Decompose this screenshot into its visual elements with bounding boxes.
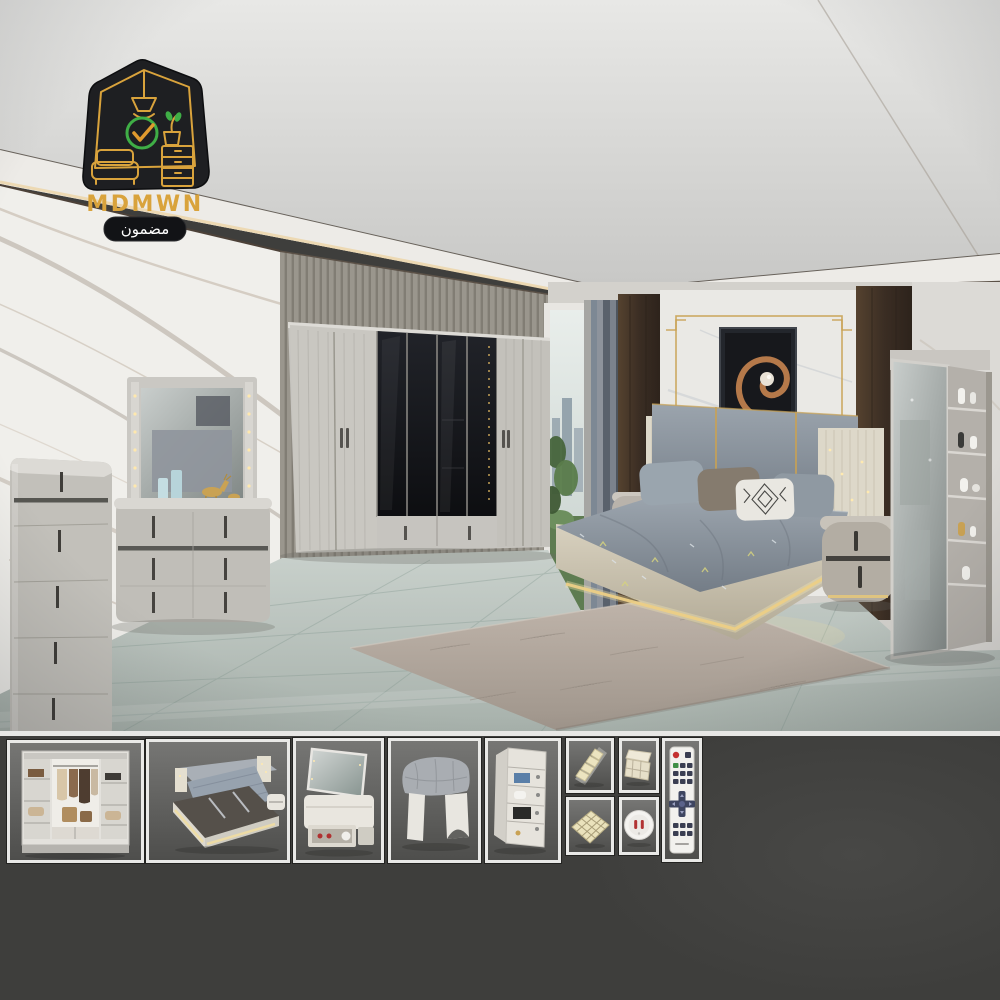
- furniture-ad-poster: MDMWN مضمون: [0, 0, 1000, 1000]
- gallery-thumb-grid-insert: [566, 797, 614, 855]
- remote-power-button: [673, 752, 679, 758]
- gallery-thumb-organizer-box: [619, 738, 659, 793]
- gallery-thumb-led-remote: [662, 738, 702, 862]
- brand-logo-badge: MDMWN مضمون: [64, 54, 226, 246]
- gallery-thumb-storage-bed: [146, 739, 290, 863]
- gallery-thumb-vanity-open: [293, 738, 384, 863]
- brand-tagline-arabic: مضمون: [121, 220, 169, 238]
- gallery-thumb-wardrobe-interior: [7, 740, 144, 863]
- brand-name: MDMWN: [86, 192, 203, 217]
- gallery-thumb-socket-light: [619, 797, 659, 855]
- badge-background: [83, 60, 209, 190]
- gallery-thumb-stool: [388, 738, 481, 863]
- product-gallery-strip: [0, 736, 1000, 1000]
- gallery-thumb-shelf-cabinet: [485, 738, 561, 863]
- gallery-thumb-step-organizer: [566, 738, 614, 793]
